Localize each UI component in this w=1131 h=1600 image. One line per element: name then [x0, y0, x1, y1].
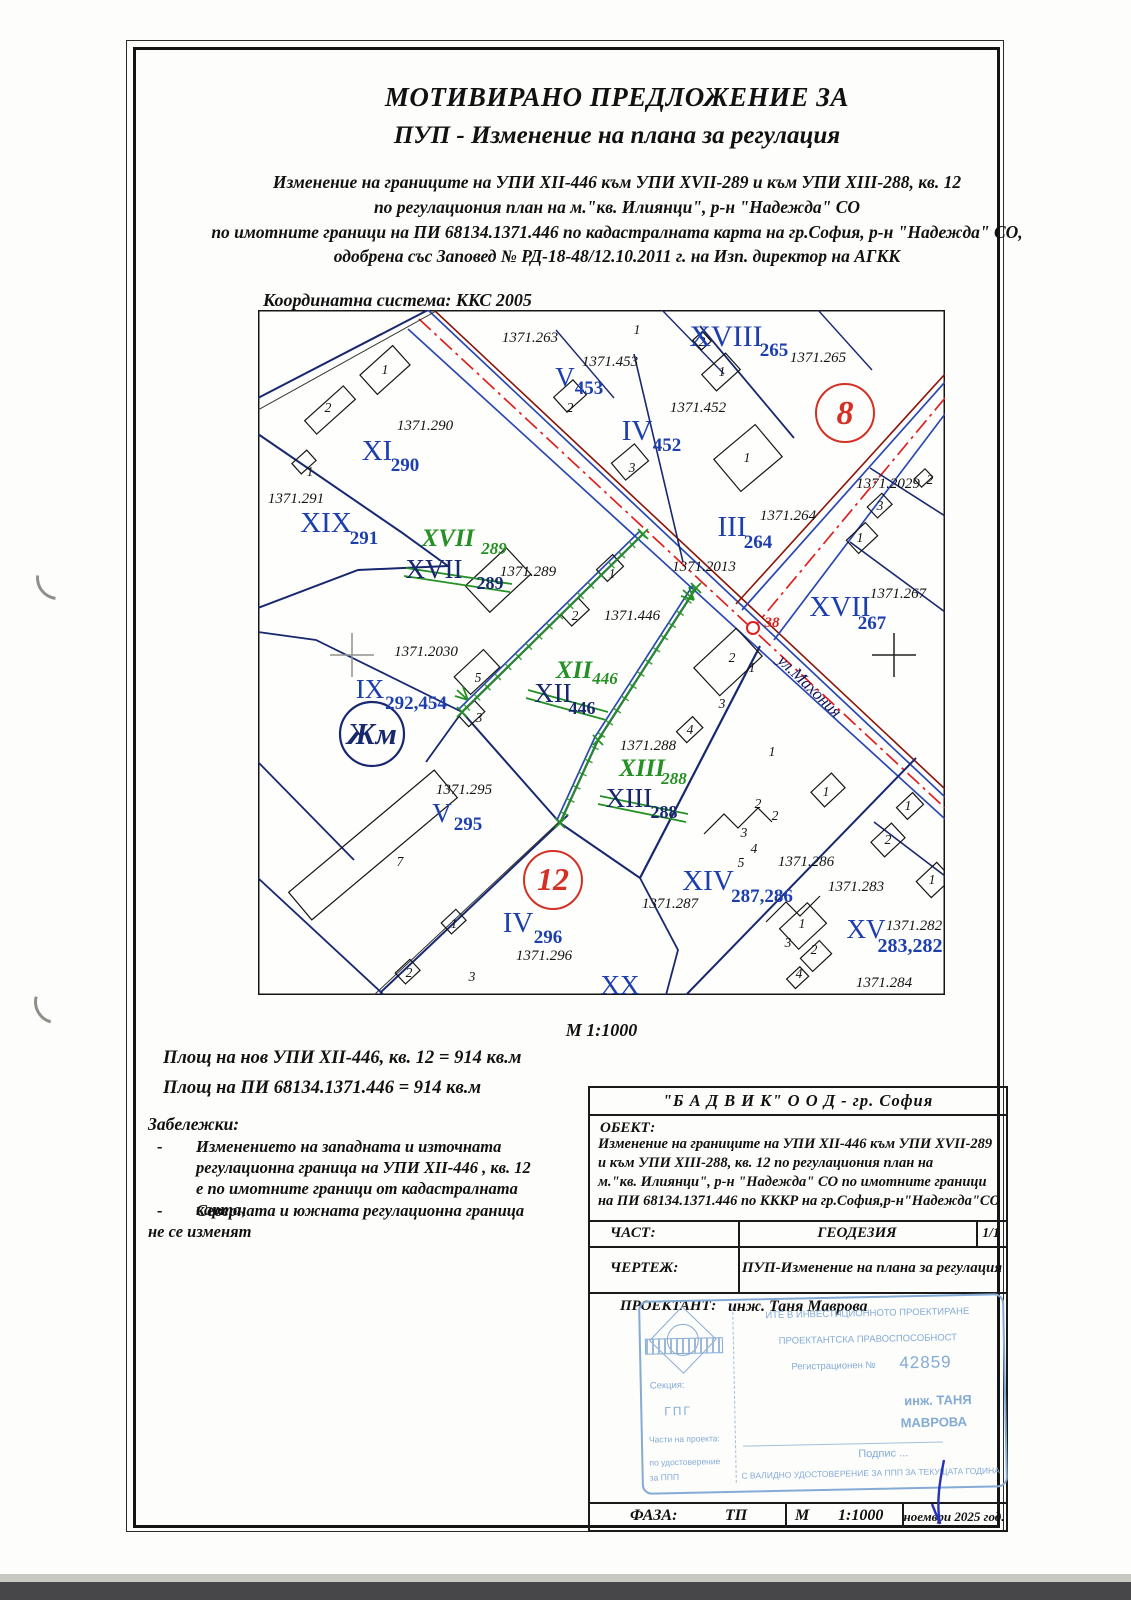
pen-signature-mark	[922, 1458, 962, 1528]
map-label: 38	[764, 615, 781, 631]
stamp-section-label: Секция:	[650, 1380, 685, 1392]
map-label: 2	[406, 965, 413, 980]
map-label: XVII	[406, 554, 463, 584]
cadastral-map: 1371.26312XVIII2651371.2651371.453V45312…	[258, 310, 945, 995]
map-label: 3	[784, 935, 792, 950]
intro-line-4: одобрена със Заповед № РД-18-48/12.10.20…	[126, 246, 1056, 267]
doc-title: МОТИВИРАНО ПРЕДЛОЖЕНИЕ ЗА	[126, 82, 1056, 113]
punch-hole-top	[27, 547, 89, 609]
map-label: 1	[744, 450, 751, 465]
stamp-signature-line	[743, 1441, 943, 1446]
map-label: 1	[769, 744, 776, 759]
map-label: 1371.296	[516, 948, 573, 964]
object-line-4: на ПИ 68134.1371.446 по КККР на гр.София…	[598, 1193, 1000, 1210]
tb-scale-label: М	[795, 1507, 809, 1525]
map-label: 4	[751, 841, 758, 856]
map-label: 446	[591, 669, 618, 688]
object-line-1: Изменение на границите на УПИ XII-446 къ…	[598, 1136, 1000, 1153]
stamp-parts-line1: по удостоверение	[649, 1456, 720, 1467]
note-dash: -	[157, 1136, 177, 1157]
map-label: 288	[660, 769, 687, 788]
doc-subtitle: ПУП - Изменение на плана за регулация	[126, 122, 1056, 150]
scanner-edge-dark	[0, 1582, 1131, 1600]
map-label: 3	[628, 460, 636, 475]
scanned-document: МОТИВИРАНО ПРЕДЛОЖЕНИЕ ЗА ПУП - Изменени…	[0, 0, 1131, 1600]
map-label: 292,454	[385, 693, 447, 714]
map-label: 1371.263	[502, 330, 558, 346]
map-label: 3	[475, 710, 483, 725]
map-label: XIX	[300, 507, 352, 539]
map-label: III	[718, 511, 747, 543]
map-scale-label: М 1:1000	[258, 1020, 945, 1041]
map-label: 1	[905, 798, 912, 813]
map-label: 295	[454, 814, 483, 835]
map-label: 2	[572, 608, 579, 623]
map-label: 2	[927, 472, 934, 487]
stamp-parts-line2: за ППП	[650, 1472, 680, 1483]
map-label: 7	[397, 854, 405, 869]
map-label: XVIII	[689, 320, 762, 353]
map-label: XIV	[682, 865, 734, 897]
note-dash: -	[157, 1200, 177, 1221]
map-label: 5	[475, 670, 482, 685]
notes-footer: не се изменят	[148, 1222, 252, 1242]
map-label: 5	[738, 855, 745, 870]
stamp-name-line1: инж. ТАНЯ	[904, 1392, 972, 1408]
map-label: XI	[362, 435, 393, 467]
map-label: 1371.287	[642, 896, 700, 912]
map-label: 1371.283	[828, 879, 884, 895]
map-label: 1371.2013	[672, 559, 736, 575]
map-label: 1371.284	[856, 975, 913, 991]
drawing-label: ЧЕРТЕЖ:	[610, 1260, 678, 1277]
map-label: 1371.267	[870, 586, 928, 602]
map-label: 1371.290	[397, 418, 454, 434]
map-label: 3	[468, 969, 476, 984]
intro-line-2: по регулациония план на м."кв. Илиянци",…	[126, 197, 1056, 218]
map-label: 1	[823, 784, 830, 799]
stamp-name-line2: МАВРОВА	[900, 1414, 967, 1430]
map-label: 289	[480, 539, 507, 558]
stamp-bottom-line: С ВАЛИДНО УДОСТОВЕРЕНИЕ ЗА ППП ЗА ТЕКУЩА…	[740, 1465, 1002, 1480]
map-label: 1371.286	[778, 854, 835, 870]
map-label: XIII	[606, 783, 652, 813]
stamp-divider	[732, 1307, 737, 1483]
map-label: XX	[601, 970, 640, 995]
map-label: 291	[350, 528, 379, 549]
stamp-section-value: ГПГ	[664, 1404, 692, 1419]
drawing-value: ПУП-Изменение на плана за регулация	[738, 1260, 1006, 1277]
map-label: 1	[609, 566, 616, 581]
map-label: 2	[567, 400, 574, 415]
map-label: 1371.288	[620, 738, 677, 754]
phase-value: ТП	[725, 1507, 747, 1525]
stamp-line-2: ПРОЕКТАНТСКА ПРАВОСПОСОБНОСТ	[737, 1331, 999, 1347]
map-label: 2	[811, 942, 818, 957]
object-label: ОБЕКТ:	[600, 1120, 655, 1137]
map-label: 2	[729, 650, 736, 665]
map-label: 1	[857, 530, 864, 545]
stamp-parts-label: Части на проекта:	[649, 1433, 720, 1444]
map-label: 1371.282	[886, 918, 943, 934]
map-label: 1371.446	[604, 608, 661, 624]
punch-hole-bottom	[26, 972, 86, 1032]
map-label: IV	[622, 415, 653, 447]
map-label: 1	[749, 660, 756, 675]
part-value: ГЕОДЕЗИЯ	[738, 1225, 976, 1242]
map-label: 287,286	[731, 886, 793, 907]
stamp-line-1: ИТЕ В ИНВЕСТИЦИОННОТО ПРОЕКТИРАНЕ	[736, 1305, 998, 1321]
notes-heading: Забележки:	[148, 1114, 239, 1135]
map-label: XIII	[618, 755, 666, 782]
kiip-barcode-icon	[645, 1337, 723, 1355]
map-label: IX	[356, 674, 385, 704]
map-label: 288	[651, 802, 678, 822]
map-label: 8	[837, 395, 854, 432]
map-label: Жм	[345, 716, 397, 751]
map-label: 283,282	[878, 935, 943, 957]
map-label: 1371.289	[500, 564, 557, 580]
map-label: 1371.452	[670, 400, 727, 416]
map-label: 267	[858, 613, 887, 634]
object-line-3: м."кв. Илиянци", р-н "Надежда" СО по имо…	[598, 1174, 1000, 1191]
stamp-signature-label: Подпис ...	[858, 1447, 908, 1460]
map-label: 1371.291	[268, 491, 324, 507]
scanner-edge-light	[0, 1574, 1131, 1582]
map-label: 1	[451, 916, 458, 931]
tb-scale-value: 1:1000	[838, 1507, 883, 1525]
area-note-pi: Площ на ПИ 68134.1371.446 = 914 кв.м	[163, 1078, 481, 1099]
map-label: 12	[537, 861, 569, 897]
note-item-2: Северната и южната регулационна граница	[196, 1200, 541, 1221]
map-label: 1371.265	[790, 350, 847, 366]
intro-line-1: Изменение на границите на УПИ XII-446 къ…	[126, 172, 1056, 193]
map-label: 1	[929, 872, 936, 887]
map-label: 2	[885, 832, 892, 847]
area-note-new-upi: Площ на нов УПИ XII-446, кв. 12 = 914 кв…	[163, 1048, 521, 1069]
map-label: 2	[755, 796, 762, 811]
map-label: 1371.2030	[394, 644, 458, 660]
map-label: 452	[653, 435, 682, 456]
map-label: 264	[744, 532, 773, 553]
map-label: 4	[687, 722, 694, 737]
map-label: 1371.2029	[856, 476, 920, 492]
map-label: 1	[634, 322, 641, 337]
map-label: V	[555, 362, 575, 392]
map-label: 1	[799, 916, 806, 931]
map-label: 3	[876, 498, 884, 513]
map-label: V	[432, 798, 452, 828]
map-label: 2	[772, 808, 779, 823]
map-label: 1	[307, 464, 314, 479]
map-label: XVII	[421, 525, 476, 552]
object-line-2: и към УПИ XIII-288, кв. 12 по регулацион…	[598, 1155, 1000, 1172]
map-label: 2	[325, 400, 332, 415]
map-label: IV	[503, 907, 534, 939]
map-label: 4	[796, 966, 803, 981]
part-label: ЧАСТ:	[610, 1225, 656, 1242]
map-labels: 1371.26312XVIII2651371.2651371.453V45312…	[268, 320, 943, 995]
map-label: 1	[382, 362, 389, 377]
sheet-number: 1/1	[976, 1225, 1006, 1241]
map-label: 3	[740, 825, 748, 840]
map-label: 3	[718, 696, 726, 711]
map-label: 296	[534, 927, 563, 948]
map-label: 1	[719, 364, 726, 379]
map-label: 446	[569, 698, 596, 718]
phase-label: ФАЗА:	[630, 1507, 677, 1525]
intro-line-3: по имотните граници на ПИ 68134.1371.446…	[126, 222, 1056, 243]
stamp-reg-number: 42859	[899, 1352, 952, 1373]
map-label: XII	[534, 678, 571, 708]
map-label: 265	[760, 340, 789, 361]
map-label: 290	[391, 455, 420, 476]
coordinate-system-label: Координатна система: ККС 2005	[263, 290, 532, 311]
company-name: "Б А Д В И К" О О Д - гр. София	[590, 1091, 1006, 1111]
stamp-reg-label: Регистрационен №	[791, 1360, 875, 1373]
map-label: 1371.453	[582, 354, 638, 370]
map-label: 1371.264	[760, 508, 817, 524]
map-label: 1371.295	[436, 782, 493, 798]
map-label: 453	[575, 378, 604, 399]
